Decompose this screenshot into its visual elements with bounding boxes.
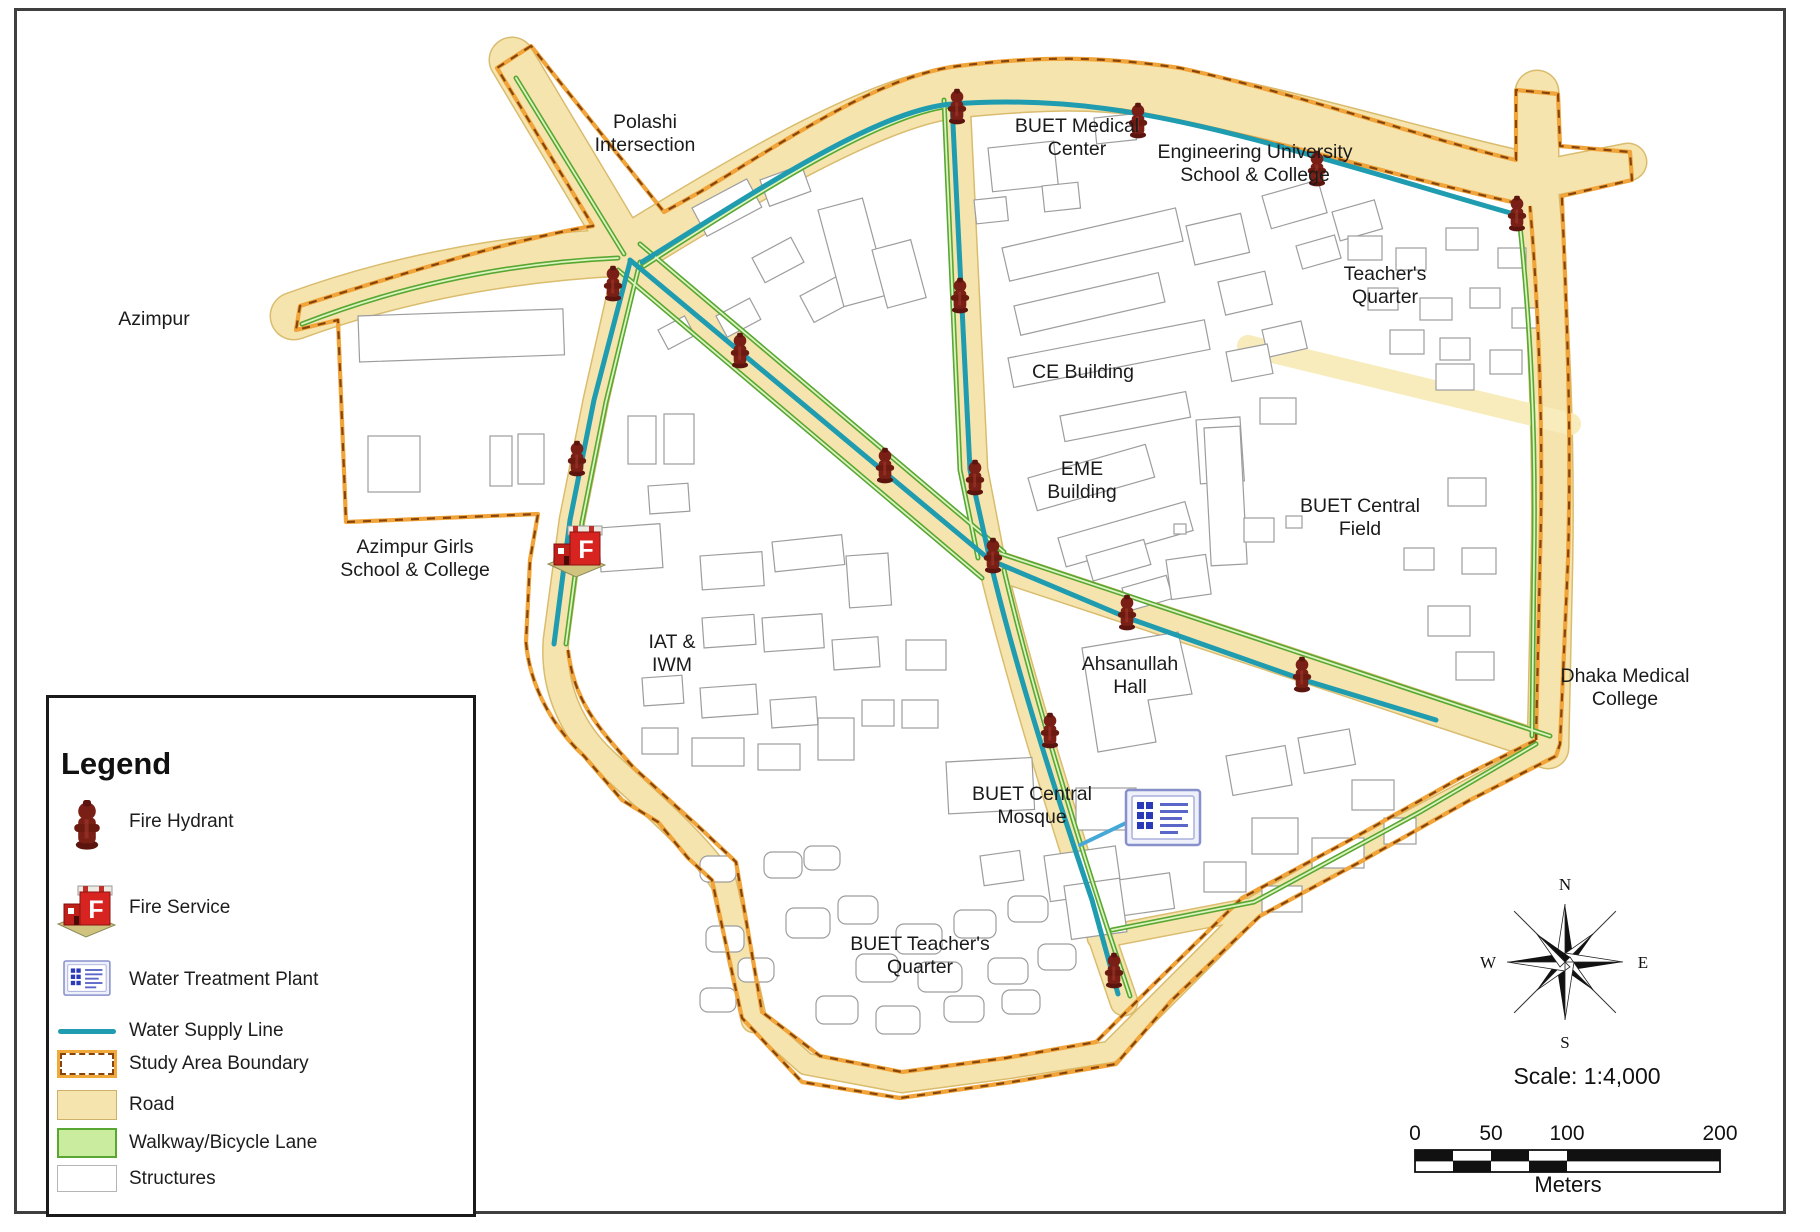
structure	[772, 535, 845, 572]
structure	[1456, 652, 1494, 680]
legend-label: Walkway/Bicycle Lane	[129, 1132, 317, 1154]
scale-tick-50: 50	[1479, 1122, 1502, 1145]
structure	[838, 896, 878, 924]
walkway-swatch	[57, 1128, 117, 1158]
scale-text: Scale: 1:4,000	[1513, 1063, 1660, 1089]
structure	[1174, 524, 1186, 534]
label-ce-building: CE Building	[1032, 361, 1134, 383]
structure	[1470, 288, 1500, 308]
structure	[1286, 516, 1302, 528]
structure	[692, 738, 744, 766]
structure	[816, 996, 858, 1024]
label-engineering-university: Engineering UniversitySchool & College	[1157, 141, 1352, 186]
structure	[1462, 548, 1496, 574]
structure	[980, 850, 1024, 885]
legend-item-road: Road	[49, 1090, 174, 1120]
legend-item-walkway: Walkway/Bicycle Lane	[49, 1128, 317, 1158]
scale-unit: Meters	[1534, 1172, 1601, 1197]
legend-label: Fire Service	[129, 897, 230, 919]
structure	[862, 700, 894, 726]
structure	[846, 553, 892, 608]
structure	[758, 744, 800, 770]
structure	[786, 908, 830, 938]
scale-tick-200: 200	[1702, 1122, 1737, 1145]
structure	[368, 436, 420, 492]
structure	[1166, 554, 1211, 599]
structure	[518, 434, 544, 484]
legend-label: Road	[129, 1094, 174, 1116]
boundary-swatch	[57, 1050, 117, 1078]
compass-south-label: S	[1560, 1033, 1569, 1052]
fire-hydrant-icon	[49, 794, 125, 850]
structure	[1008, 896, 1048, 922]
legend-label: Structures	[129, 1168, 216, 1190]
legend-label: Water Supply Line	[129, 1020, 284, 1042]
compass-west-label: W	[1480, 953, 1497, 972]
structure	[700, 988, 736, 1012]
legend-item-structures: Structures	[49, 1165, 216, 1192]
structure	[832, 637, 880, 670]
legend: Legend Fire Hydrant Fire Service Water T…	[46, 695, 476, 1217]
structure	[700, 684, 758, 718]
structure	[902, 700, 938, 728]
structure	[664, 414, 694, 464]
structure	[1262, 886, 1302, 912]
structure	[1038, 944, 1076, 970]
structure	[700, 856, 736, 882]
structure	[648, 483, 690, 514]
structure	[700, 552, 764, 590]
structure	[1042, 182, 1081, 212]
legend-item-boundary: Study Area Boundary	[49, 1050, 309, 1078]
structure	[1244, 518, 1274, 542]
legend-label: Fire Hydrant	[129, 811, 234, 833]
structure	[818, 718, 854, 760]
label-teachers-quarter-ne: Teacher'sQuarter	[1344, 263, 1427, 308]
structure	[702, 614, 756, 648]
structure	[988, 958, 1028, 984]
structure	[1404, 548, 1434, 570]
structure	[804, 846, 840, 870]
structure	[764, 852, 802, 878]
structure	[358, 309, 564, 362]
structure	[762, 614, 824, 652]
legend-item-fire-hydrant: Fire Hydrant	[49, 794, 234, 850]
structure	[1440, 338, 1470, 360]
structure	[642, 728, 678, 754]
compass-east-label: E	[1638, 953, 1648, 972]
structure	[1118, 873, 1175, 916]
structure	[1512, 308, 1538, 328]
structure	[770, 697, 818, 728]
structure	[1260, 398, 1296, 424]
structure	[598, 524, 663, 572]
structure	[1446, 228, 1478, 250]
structure	[642, 675, 684, 706]
structure	[1002, 990, 1040, 1014]
scale-tick-0: 0	[1409, 1122, 1421, 1145]
structure	[1436, 364, 1474, 390]
structure	[1420, 298, 1452, 320]
structure	[1490, 350, 1522, 374]
water-line-swatch	[58, 1029, 116, 1034]
label-azimpur: Azimpur	[118, 308, 190, 330]
structure	[490, 436, 512, 486]
legend-item-water-supply: Water Supply Line	[49, 1020, 284, 1042]
legend-label: Study Area Boundary	[129, 1053, 309, 1075]
structure	[944, 996, 984, 1022]
structure	[1390, 330, 1424, 354]
structure	[1204, 426, 1247, 566]
legend-title: Legend	[61, 746, 171, 782]
scale-tick-100: 100	[1549, 1122, 1584, 1145]
structure	[876, 1006, 920, 1034]
structure	[974, 197, 1008, 224]
structure	[1252, 818, 1298, 854]
legend-item-wtp: Water Treatment Plant	[49, 960, 318, 1000]
structure	[1204, 862, 1246, 892]
map-page: F	[0, 0, 1820, 1232]
legend-item-fire-service: Fire Service	[49, 876, 230, 940]
legend-label: Water Treatment Plant	[129, 969, 318, 991]
structure	[628, 416, 656, 464]
structure	[906, 640, 946, 670]
structure	[1428, 606, 1470, 636]
structure	[1348, 236, 1382, 260]
road-swatch	[57, 1090, 117, 1120]
structure	[1352, 780, 1394, 810]
label-iat-iwm: IAT &IWM	[649, 631, 696, 676]
structure	[1448, 478, 1486, 506]
fire-service-icon	[49, 876, 125, 940]
compass-north-label: N	[1559, 875, 1571, 894]
water-treatment-plant-icon	[49, 960, 125, 1000]
label-azimpur-girls-school: Azimpur GirlsSchool & College	[340, 536, 490, 581]
structures-swatch	[57, 1165, 117, 1192]
water-treatment-plant-icon	[1126, 790, 1200, 845]
